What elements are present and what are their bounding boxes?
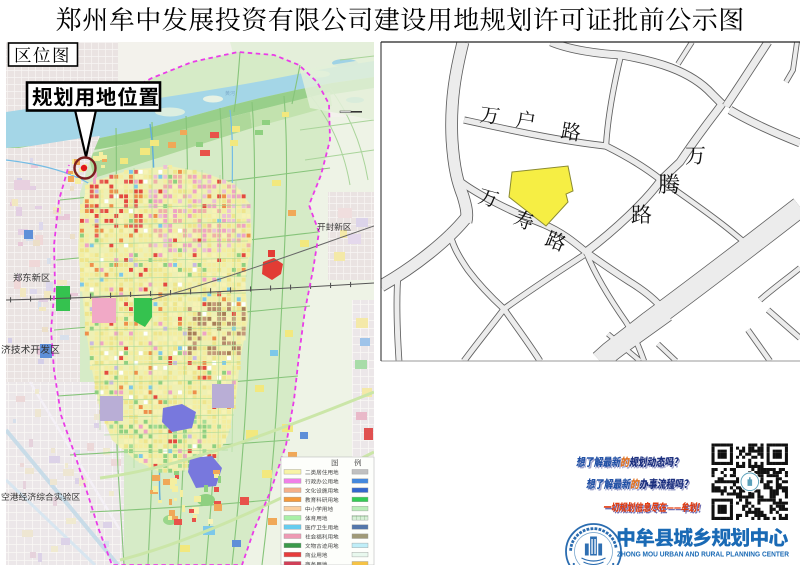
- svg-text:ZHONG MOU URBAN AND RURAL PLAN: ZHONG MOU URBAN AND RURAL PLANNING CENTE…: [617, 550, 790, 559]
